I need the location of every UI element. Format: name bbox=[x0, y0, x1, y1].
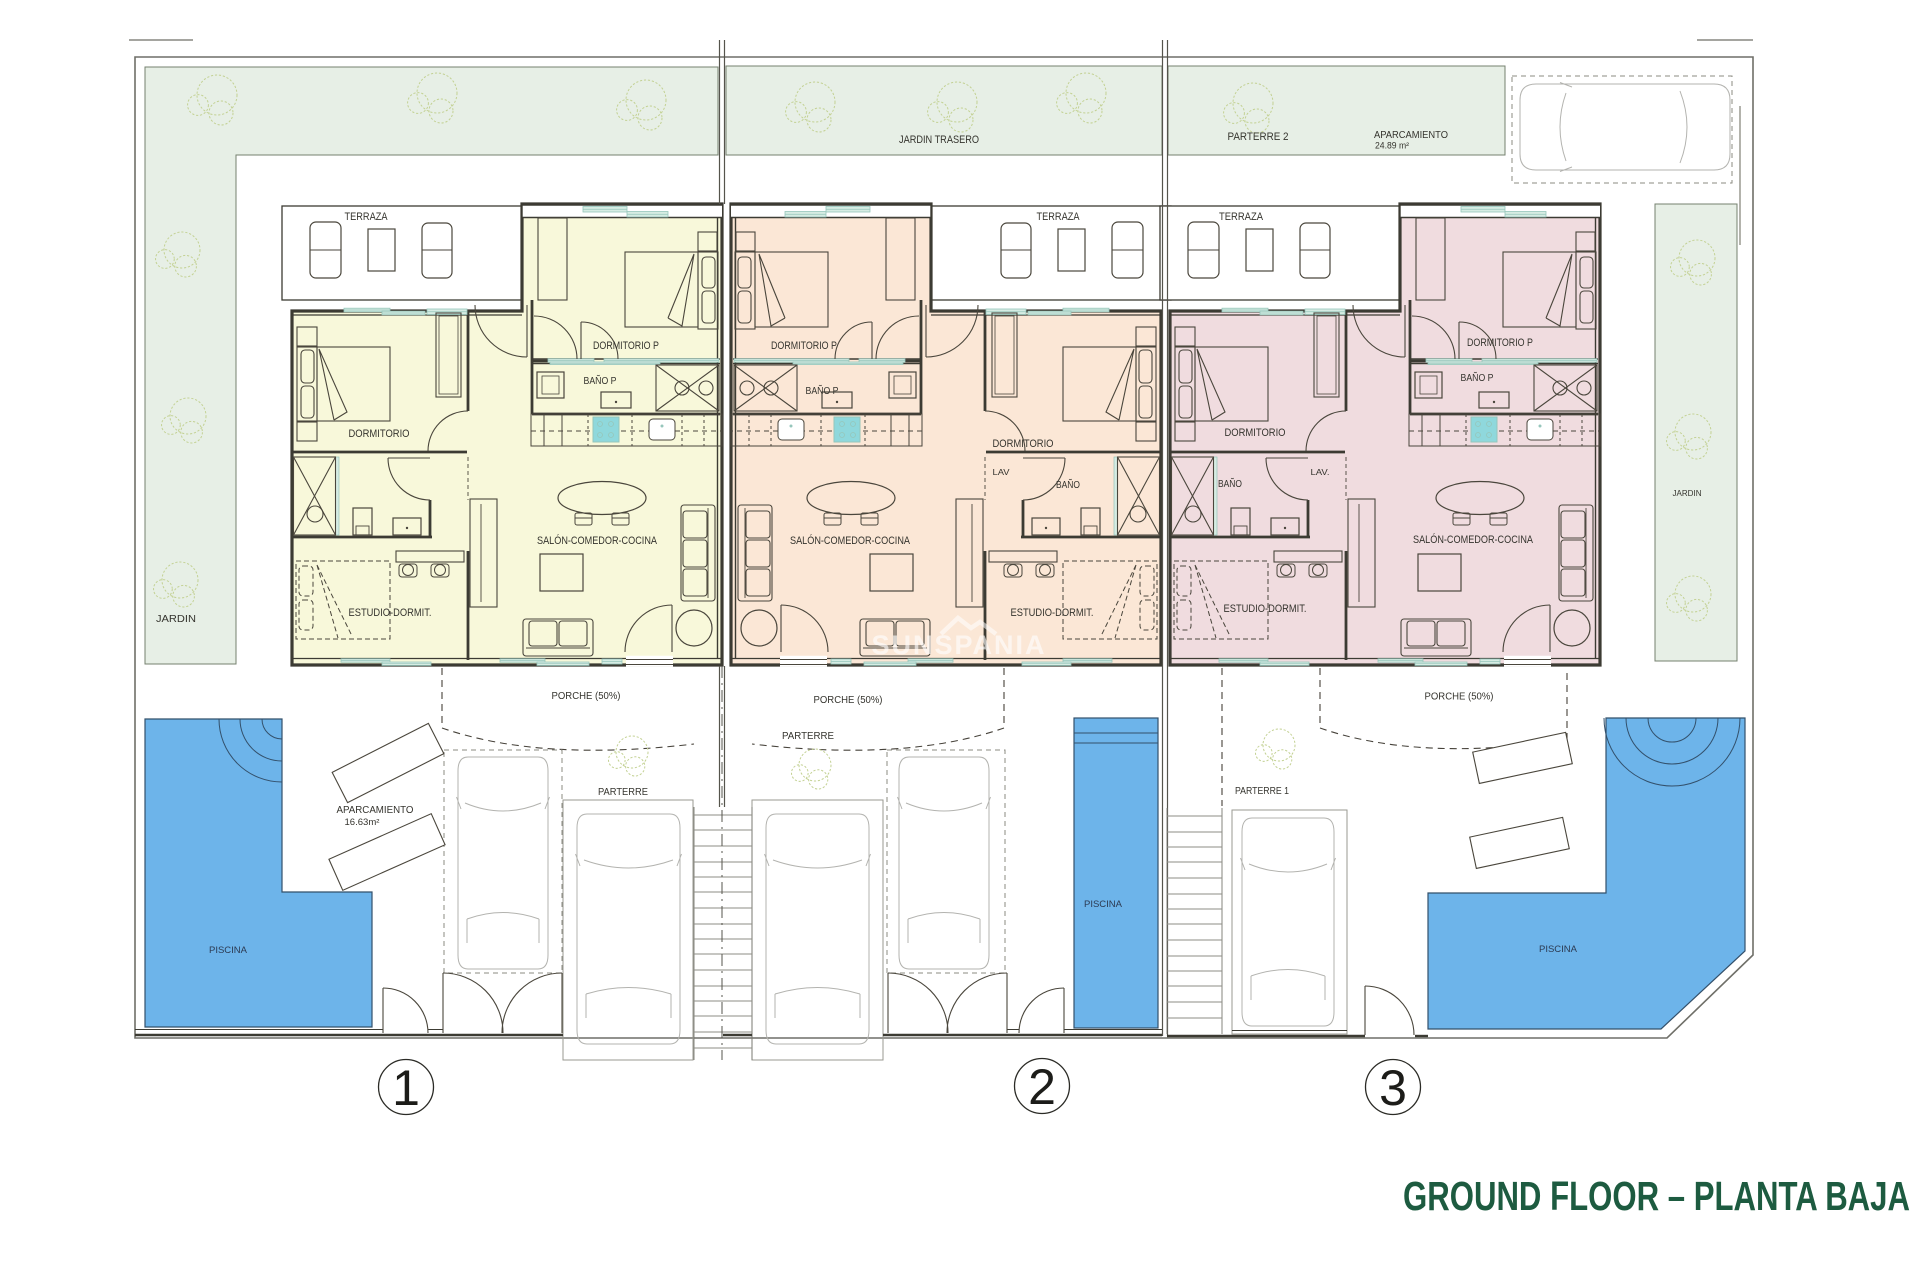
svg-text:1: 1 bbox=[392, 1060, 420, 1116]
svg-text:PISCINA: PISCINA bbox=[209, 945, 248, 956]
svg-text:TERRAZA: TERRAZA bbox=[1219, 211, 1264, 223]
svg-text:GROUND FLOOR – PLANTA BAJA: GROUND FLOOR – PLANTA BAJA bbox=[1403, 1173, 1910, 1219]
svg-text:SALÓN-COMEDOR-COCINA: SALÓN-COMEDOR-COCINA bbox=[537, 534, 658, 547]
svg-text:ESTUDIO-DORMIT.: ESTUDIO-DORMIT. bbox=[1224, 603, 1307, 615]
svg-text:3: 3 bbox=[1379, 1060, 1407, 1116]
svg-text:SALÓN-COMEDOR-COCINA: SALÓN-COMEDOR-COCINA bbox=[790, 534, 911, 547]
svg-text:SUNSPANIA: SUNSPANIA bbox=[871, 630, 1046, 660]
svg-text:DORMITORIO: DORMITORIO bbox=[993, 438, 1054, 450]
svg-text:DORMITORIO: DORMITORIO bbox=[1225, 427, 1286, 439]
svg-text:PORCHE (50%): PORCHE (50%) bbox=[814, 695, 883, 706]
svg-text:BAÑO: BAÑO bbox=[1056, 478, 1080, 491]
svg-text:ESTUDIO-DORMIT.: ESTUDIO-DORMIT. bbox=[1011, 607, 1094, 619]
svg-text:PISCINA: PISCINA bbox=[1539, 944, 1578, 955]
svg-text:JARDIN: JARDIN bbox=[1673, 489, 1702, 498]
svg-text:DORMITORIO P: DORMITORIO P bbox=[593, 340, 659, 352]
svg-text:PARTERRE 2: PARTERRE 2 bbox=[1228, 131, 1289, 143]
svg-text:LAV: LAV bbox=[993, 467, 1010, 477]
svg-text:16.63m²: 16.63m² bbox=[345, 817, 380, 827]
svg-text:TERRAZA: TERRAZA bbox=[1037, 211, 1081, 223]
svg-text:JARDIN: JARDIN bbox=[156, 614, 196, 625]
svg-text:LAV.: LAV. bbox=[1311, 467, 1330, 477]
svg-text:2: 2 bbox=[1028, 1059, 1056, 1115]
svg-text:TERRAZA: TERRAZA bbox=[345, 211, 389, 223]
svg-text:PARTERRE: PARTERRE bbox=[782, 731, 834, 742]
svg-text:PARTERRE: PARTERRE bbox=[598, 787, 648, 798]
svg-text:PORCHE (50%): PORCHE (50%) bbox=[552, 691, 621, 702]
svg-text:JARDIN TRASERO: JARDIN TRASERO bbox=[899, 134, 979, 146]
svg-text:APARCAMIENTO: APARCAMIENTO bbox=[337, 805, 414, 816]
svg-text:DORMITORIO P: DORMITORIO P bbox=[1467, 337, 1533, 349]
svg-text:BAÑO P: BAÑO P bbox=[806, 384, 839, 397]
svg-text:24.89 m²: 24.89 m² bbox=[1375, 141, 1409, 151]
svg-text:APARCAMIENTO: APARCAMIENTO bbox=[1374, 130, 1448, 141]
svg-text:PORCHE (50%): PORCHE (50%) bbox=[1425, 692, 1494, 703]
svg-text:BAÑO P: BAÑO P bbox=[1461, 371, 1494, 384]
svg-text:PISCINA: PISCINA bbox=[1084, 899, 1123, 910]
svg-text:PARTERRE 1: PARTERRE 1 bbox=[1235, 786, 1289, 797]
svg-text:SALÓN-COMEDOR-COCINA: SALÓN-COMEDOR-COCINA bbox=[1413, 533, 1534, 546]
svg-text:DORMITORIO: DORMITORIO bbox=[349, 428, 410, 440]
svg-text:ESTUDIO-DORMIT.: ESTUDIO-DORMIT. bbox=[349, 607, 432, 619]
svg-text:DORMITORIO P: DORMITORIO P bbox=[771, 340, 837, 352]
svg-text:BAÑO P: BAÑO P bbox=[584, 374, 617, 387]
svg-text:BAÑO: BAÑO bbox=[1218, 477, 1242, 490]
